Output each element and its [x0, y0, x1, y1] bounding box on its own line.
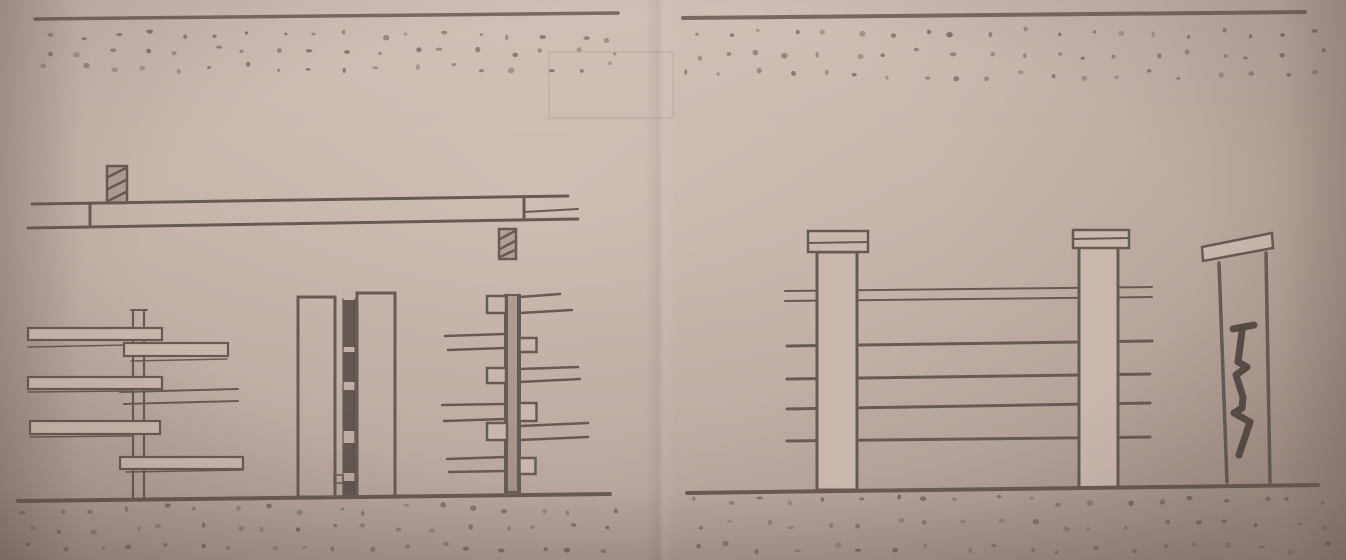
soil-dot	[1165, 520, 1170, 525]
soil-dot	[101, 546, 105, 550]
soil-dot	[757, 68, 762, 74]
soil-dot	[727, 52, 731, 56]
soil-dot	[1114, 76, 1119, 79]
soil-dot	[583, 36, 589, 40]
plan-view-lap-joint	[28, 166, 578, 259]
soil-dot	[1023, 53, 1027, 58]
soil-dot	[1287, 550, 1293, 554]
soil-dot	[1243, 56, 1248, 59]
soil-dot	[91, 530, 97, 535]
soil-dot	[892, 548, 898, 553]
soil-dot	[829, 523, 834, 528]
soil-dot	[125, 506, 129, 512]
soil-dot	[1265, 497, 1271, 501]
soil-dot	[788, 526, 794, 529]
soil-dot	[396, 528, 402, 532]
soil-dot	[791, 71, 796, 76]
soil-dot	[272, 546, 278, 550]
soil-dot	[1196, 520, 1202, 524]
soil-dot	[954, 76, 960, 81]
soil-dot	[601, 549, 607, 553]
soil-dot	[177, 69, 181, 74]
board-end-block	[344, 300, 356, 347]
board-edge	[447, 457, 505, 459]
soil-dot	[835, 543, 841, 548]
soil-dot	[816, 52, 819, 58]
soil-dot	[968, 548, 972, 554]
soil-dot	[284, 33, 287, 36]
soil-dot	[1249, 34, 1252, 38]
board-end-block	[344, 443, 356, 473]
soil-dot	[950, 52, 956, 56]
board-edge	[449, 471, 505, 472]
board-edge	[442, 404, 505, 405]
soil-dot	[1093, 546, 1098, 551]
soil-dot	[566, 510, 569, 515]
soil-dot	[1058, 52, 1063, 56]
soil-dot	[1118, 31, 1124, 36]
soil-dot	[306, 49, 312, 52]
soil-dot	[440, 502, 446, 508]
soil-dot	[429, 529, 435, 533]
soil-dot	[542, 509, 547, 514]
soil-dot	[717, 72, 720, 76]
soil-stipple-bottom-right	[692, 494, 1331, 554]
soil-dot	[192, 507, 195, 511]
soil-dot	[19, 511, 25, 515]
soil-dot	[727, 520, 732, 523]
soil-dot	[1312, 29, 1318, 33]
lap-edge-line	[524, 209, 578, 212]
soil-dot	[1287, 73, 1292, 76]
soil-dot	[695, 33, 699, 36]
soil-dot	[1279, 53, 1284, 58]
soil-dot	[1147, 69, 1152, 72]
soil-dot	[925, 76, 931, 80]
soil-dot	[960, 520, 966, 523]
zigzag-crack	[1234, 331, 1250, 455]
soil-dot	[756, 29, 760, 32]
soil-dot	[984, 76, 989, 81]
soil-dot	[604, 38, 609, 43]
soil-dot	[1133, 550, 1137, 553]
soil-dot	[1225, 543, 1231, 549]
spacer-block-right	[520, 458, 536, 474]
soil-dot	[722, 541, 728, 546]
soil-dot	[57, 530, 61, 534]
soil-dot	[855, 549, 861, 552]
soil-dot	[698, 56, 703, 61]
soil-dot	[463, 547, 469, 551]
soil-dot	[613, 52, 616, 56]
soil-dot	[859, 498, 864, 501]
soil-dot	[344, 50, 350, 54]
post-back	[357, 293, 395, 497]
soil-dot	[1224, 54, 1228, 57]
soil-dot	[260, 527, 264, 532]
board-edge	[520, 423, 588, 426]
soil-dot	[1033, 519, 1039, 524]
soil-dot	[1322, 526, 1327, 531]
soil-dot	[183, 34, 187, 39]
soil-dot	[787, 501, 792, 506]
soil-dot	[855, 523, 860, 528]
soil-dot	[699, 526, 704, 530]
soil-dot	[1321, 48, 1325, 53]
elevation-alternating-boards	[28, 310, 243, 497]
post-and-rail-fence	[785, 230, 1152, 490]
post-a	[817, 252, 857, 490]
spacer-block-right	[520, 403, 537, 421]
soil-dot	[245, 31, 248, 34]
soil-dot	[1224, 499, 1230, 502]
soil-dot	[891, 33, 896, 38]
soil-dot	[1187, 496, 1193, 500]
soil-dot	[1128, 500, 1133, 506]
soil-dot	[997, 495, 1002, 499]
soil-dot	[1087, 527, 1091, 531]
spacer-block-left	[487, 423, 507, 440]
soil-dot	[820, 30, 826, 35]
soil-dot	[163, 543, 167, 547]
soil-dot	[468, 524, 472, 529]
cracked-post	[1202, 233, 1273, 482]
soil-dot	[452, 63, 457, 66]
rail-bottom-edge	[28, 219, 578, 228]
soil-dot	[146, 49, 151, 54]
board-left-2	[28, 377, 162, 389]
soil-dot	[538, 48, 542, 52]
board-right-2-bottom	[124, 401, 238, 404]
soil-dot	[370, 547, 375, 552]
soil-dot	[359, 524, 365, 528]
post-edge-right	[1266, 253, 1270, 482]
soil-dot	[416, 64, 420, 70]
soil-dot	[239, 50, 243, 53]
board-right-3	[120, 457, 243, 469]
soil-dot	[73, 52, 80, 57]
soil-dot	[729, 501, 735, 505]
soil-dot	[1187, 35, 1190, 39]
soil-dot	[756, 497, 762, 500]
post-b-cap-line	[1073, 238, 1129, 239]
soil-dot	[858, 54, 864, 59]
soil-dot	[1280, 33, 1285, 36]
board-end-block	[344, 481, 356, 497]
post-edge-left	[1219, 263, 1227, 482]
soil-dot	[266, 504, 271, 509]
soil-dot	[859, 31, 865, 37]
soil-dot	[1018, 70, 1024, 74]
board-edge	[444, 419, 505, 421]
soil-dot	[501, 509, 507, 513]
post-section-hatched-right	[499, 229, 516, 259]
soil-dot	[897, 494, 901, 499]
soil-dot	[885, 76, 888, 80]
sketch-svg	[0, 0, 1346, 560]
soil-dot	[334, 524, 338, 527]
soil-dot	[1221, 519, 1227, 523]
paper-photo	[0, 0, 1346, 560]
soil-dot	[999, 519, 1005, 523]
soil-dot	[512, 53, 518, 57]
soil-stipple-top-right	[684, 27, 1326, 82]
soil-dot	[1087, 500, 1093, 506]
board-shadow-line	[30, 436, 131, 437]
soil-dot	[404, 33, 408, 36]
board-right-1	[124, 343, 228, 356]
soil-dot	[920, 496, 926, 501]
soil-dot	[296, 527, 301, 531]
soil-dot	[139, 66, 145, 71]
soil-dot	[383, 35, 389, 41]
soil-dot	[989, 32, 993, 38]
post-a-cap-line	[808, 242, 868, 243]
soil-dot	[1152, 32, 1155, 38]
soil-dot	[378, 52, 381, 55]
soil-dot	[1081, 57, 1085, 60]
soil-dot	[25, 543, 30, 546]
soil-dot	[794, 549, 800, 552]
post-section-hatched-left	[107, 166, 127, 203]
soil-dot	[1082, 76, 1088, 81]
spacer-block-left	[487, 296, 506, 313]
soil-dot	[1112, 55, 1116, 59]
soil-dot	[1064, 526, 1070, 531]
soil-dot	[112, 68, 118, 73]
soil-dot	[1055, 503, 1061, 507]
soil-dot	[881, 53, 885, 57]
soil-dot	[342, 30, 346, 35]
soil-stipple-bottom-left	[19, 502, 618, 553]
soil-dot	[914, 48, 920, 52]
soil-dot	[1325, 542, 1331, 546]
soil-dot	[341, 508, 344, 511]
soil-dot	[202, 522, 205, 527]
soil-dot	[165, 503, 171, 507]
soil-dot	[1192, 543, 1196, 547]
elevation-spacer-blocks	[442, 294, 588, 492]
board-edge	[520, 367, 578, 369]
board-edge	[520, 294, 560, 297]
soil-dot	[781, 53, 788, 59]
soil-dot	[239, 526, 244, 531]
soil-dot	[696, 544, 701, 549]
soil-dot	[1297, 522, 1303, 525]
soil-dot	[277, 68, 280, 72]
soil-dot	[924, 543, 928, 549]
soil-dot	[540, 35, 546, 39]
soil-dot	[605, 526, 609, 529]
soil-dot	[1185, 49, 1190, 54]
board-shadow-line	[28, 391, 131, 392]
soil-dot	[441, 31, 447, 35]
right-panel	[683, 12, 1331, 555]
soil-dot	[927, 30, 931, 35]
soil-dot	[768, 520, 772, 525]
top-edge-line-right	[683, 12, 1305, 18]
soil-dot	[246, 62, 250, 67]
board-end-block	[344, 352, 356, 382]
soil-dot	[796, 30, 800, 34]
soil-dot	[1321, 501, 1325, 505]
soil-dot	[155, 524, 161, 528]
soil-dot	[1259, 545, 1265, 548]
soil-dot	[470, 505, 476, 511]
board-left-3	[30, 421, 160, 434]
soil-dot	[1223, 28, 1227, 33]
tilted-cap	[1202, 233, 1273, 261]
soil-dot	[405, 544, 410, 549]
soil-dot	[825, 70, 829, 76]
soil-dot	[608, 61, 611, 65]
soil-dot	[922, 520, 926, 525]
post-front	[298, 297, 335, 497]
soil-dot	[498, 548, 505, 552]
soil-dot	[311, 33, 315, 36]
board-edge	[520, 437, 588, 440]
soil-dot	[571, 523, 577, 527]
soil-dot	[207, 66, 211, 69]
soil-dot	[172, 51, 177, 55]
soil-dot	[40, 64, 46, 69]
soil-dot	[946, 32, 953, 37]
soil-dot	[564, 548, 570, 553]
soil-dot	[216, 46, 222, 49]
soil-dot	[1176, 77, 1180, 80]
soil-dot	[1093, 30, 1096, 33]
soil-dot	[81, 37, 87, 40]
soil-dot	[1023, 27, 1028, 32]
soil-dot	[416, 47, 421, 52]
soil-dot	[508, 527, 511, 531]
soil-dot	[1284, 497, 1289, 501]
soil-dot	[63, 547, 68, 552]
soil-dot	[1248, 71, 1254, 76]
soil-dot	[1164, 544, 1168, 548]
soil-dot	[213, 35, 217, 38]
soil-dot	[730, 33, 734, 37]
soil-dot	[361, 511, 364, 516]
left-panel	[18, 13, 618, 553]
board-edge	[445, 334, 505, 336]
board-shadow-line	[131, 359, 227, 361]
board-edge	[448, 348, 505, 350]
soil-dot	[31, 526, 35, 530]
board-left-1	[28, 328, 162, 340]
soil-dot	[1160, 499, 1166, 504]
soil-dot	[330, 546, 334, 552]
spacer-block-right	[520, 338, 537, 352]
board-edge	[520, 310, 572, 313]
soil-dot	[297, 510, 303, 515]
soil-dot	[531, 525, 535, 529]
soil-dot	[684, 69, 687, 74]
soil-dot	[821, 497, 824, 502]
soil-dot	[403, 504, 409, 507]
soil-dot	[991, 544, 996, 547]
soil-dot	[851, 73, 856, 76]
soil-dot	[505, 35, 508, 41]
soil-dot	[692, 496, 695, 501]
board-edge	[520, 379, 580, 382]
ground-line-left	[18, 494, 610, 501]
soil-dot	[443, 542, 449, 546]
soil-dot	[147, 30, 153, 34]
soil-dot	[991, 52, 996, 57]
soil-dot	[83, 63, 89, 68]
top-edge-line-left	[35, 13, 618, 19]
soil-dot	[577, 47, 582, 52]
soil-dot	[899, 518, 904, 523]
soil-dot	[226, 546, 230, 550]
spacer-block-left	[487, 368, 506, 383]
soil-dot	[1031, 548, 1035, 553]
soil-dot	[614, 508, 618, 513]
soil-dot	[549, 69, 555, 72]
soil-dot	[48, 52, 53, 57]
ground-line-right	[687, 485, 1318, 493]
soil-dot	[1254, 523, 1258, 527]
board-end-block	[344, 390, 356, 431]
soil-dot	[277, 48, 282, 53]
soil-dot	[1055, 551, 1058, 554]
soil-dot	[1052, 74, 1056, 78]
soil-dot	[480, 33, 483, 36]
soil-dot	[61, 510, 66, 514]
soil-dot	[302, 546, 307, 549]
soil-dot	[372, 66, 378, 69]
soil-dot	[116, 33, 122, 36]
post-b	[1079, 247, 1118, 488]
soil-dot	[47, 33, 53, 37]
soil-dot	[952, 498, 958, 501]
soil-dot	[1219, 72, 1224, 78]
soil-dot	[580, 69, 584, 73]
soil-stipple-top-left	[40, 30, 616, 74]
soil-dot	[1029, 497, 1035, 500]
soil-dot	[436, 48, 443, 51]
board-shadow-line	[28, 345, 131, 347]
soil-dot	[125, 545, 131, 550]
soil-dot	[202, 544, 206, 549]
soil-dot	[137, 526, 140, 531]
profile-double-post	[298, 293, 395, 497]
soil-dot	[1124, 526, 1127, 529]
soil-dot	[544, 547, 548, 551]
soil-dot	[1312, 70, 1318, 74]
soil-dot	[236, 506, 240, 511]
soil-dot	[110, 49, 116, 53]
soil-dot	[306, 68, 311, 71]
soil-dot	[755, 549, 759, 554]
soil-dot	[753, 50, 759, 56]
soil-dot	[343, 68, 346, 73]
soil-dot	[87, 510, 92, 514]
soil-dot	[475, 47, 480, 53]
soil-dot	[508, 68, 515, 74]
soil-dot	[479, 69, 484, 72]
soil-dot	[1157, 53, 1162, 58]
soil-dot	[1058, 33, 1061, 37]
